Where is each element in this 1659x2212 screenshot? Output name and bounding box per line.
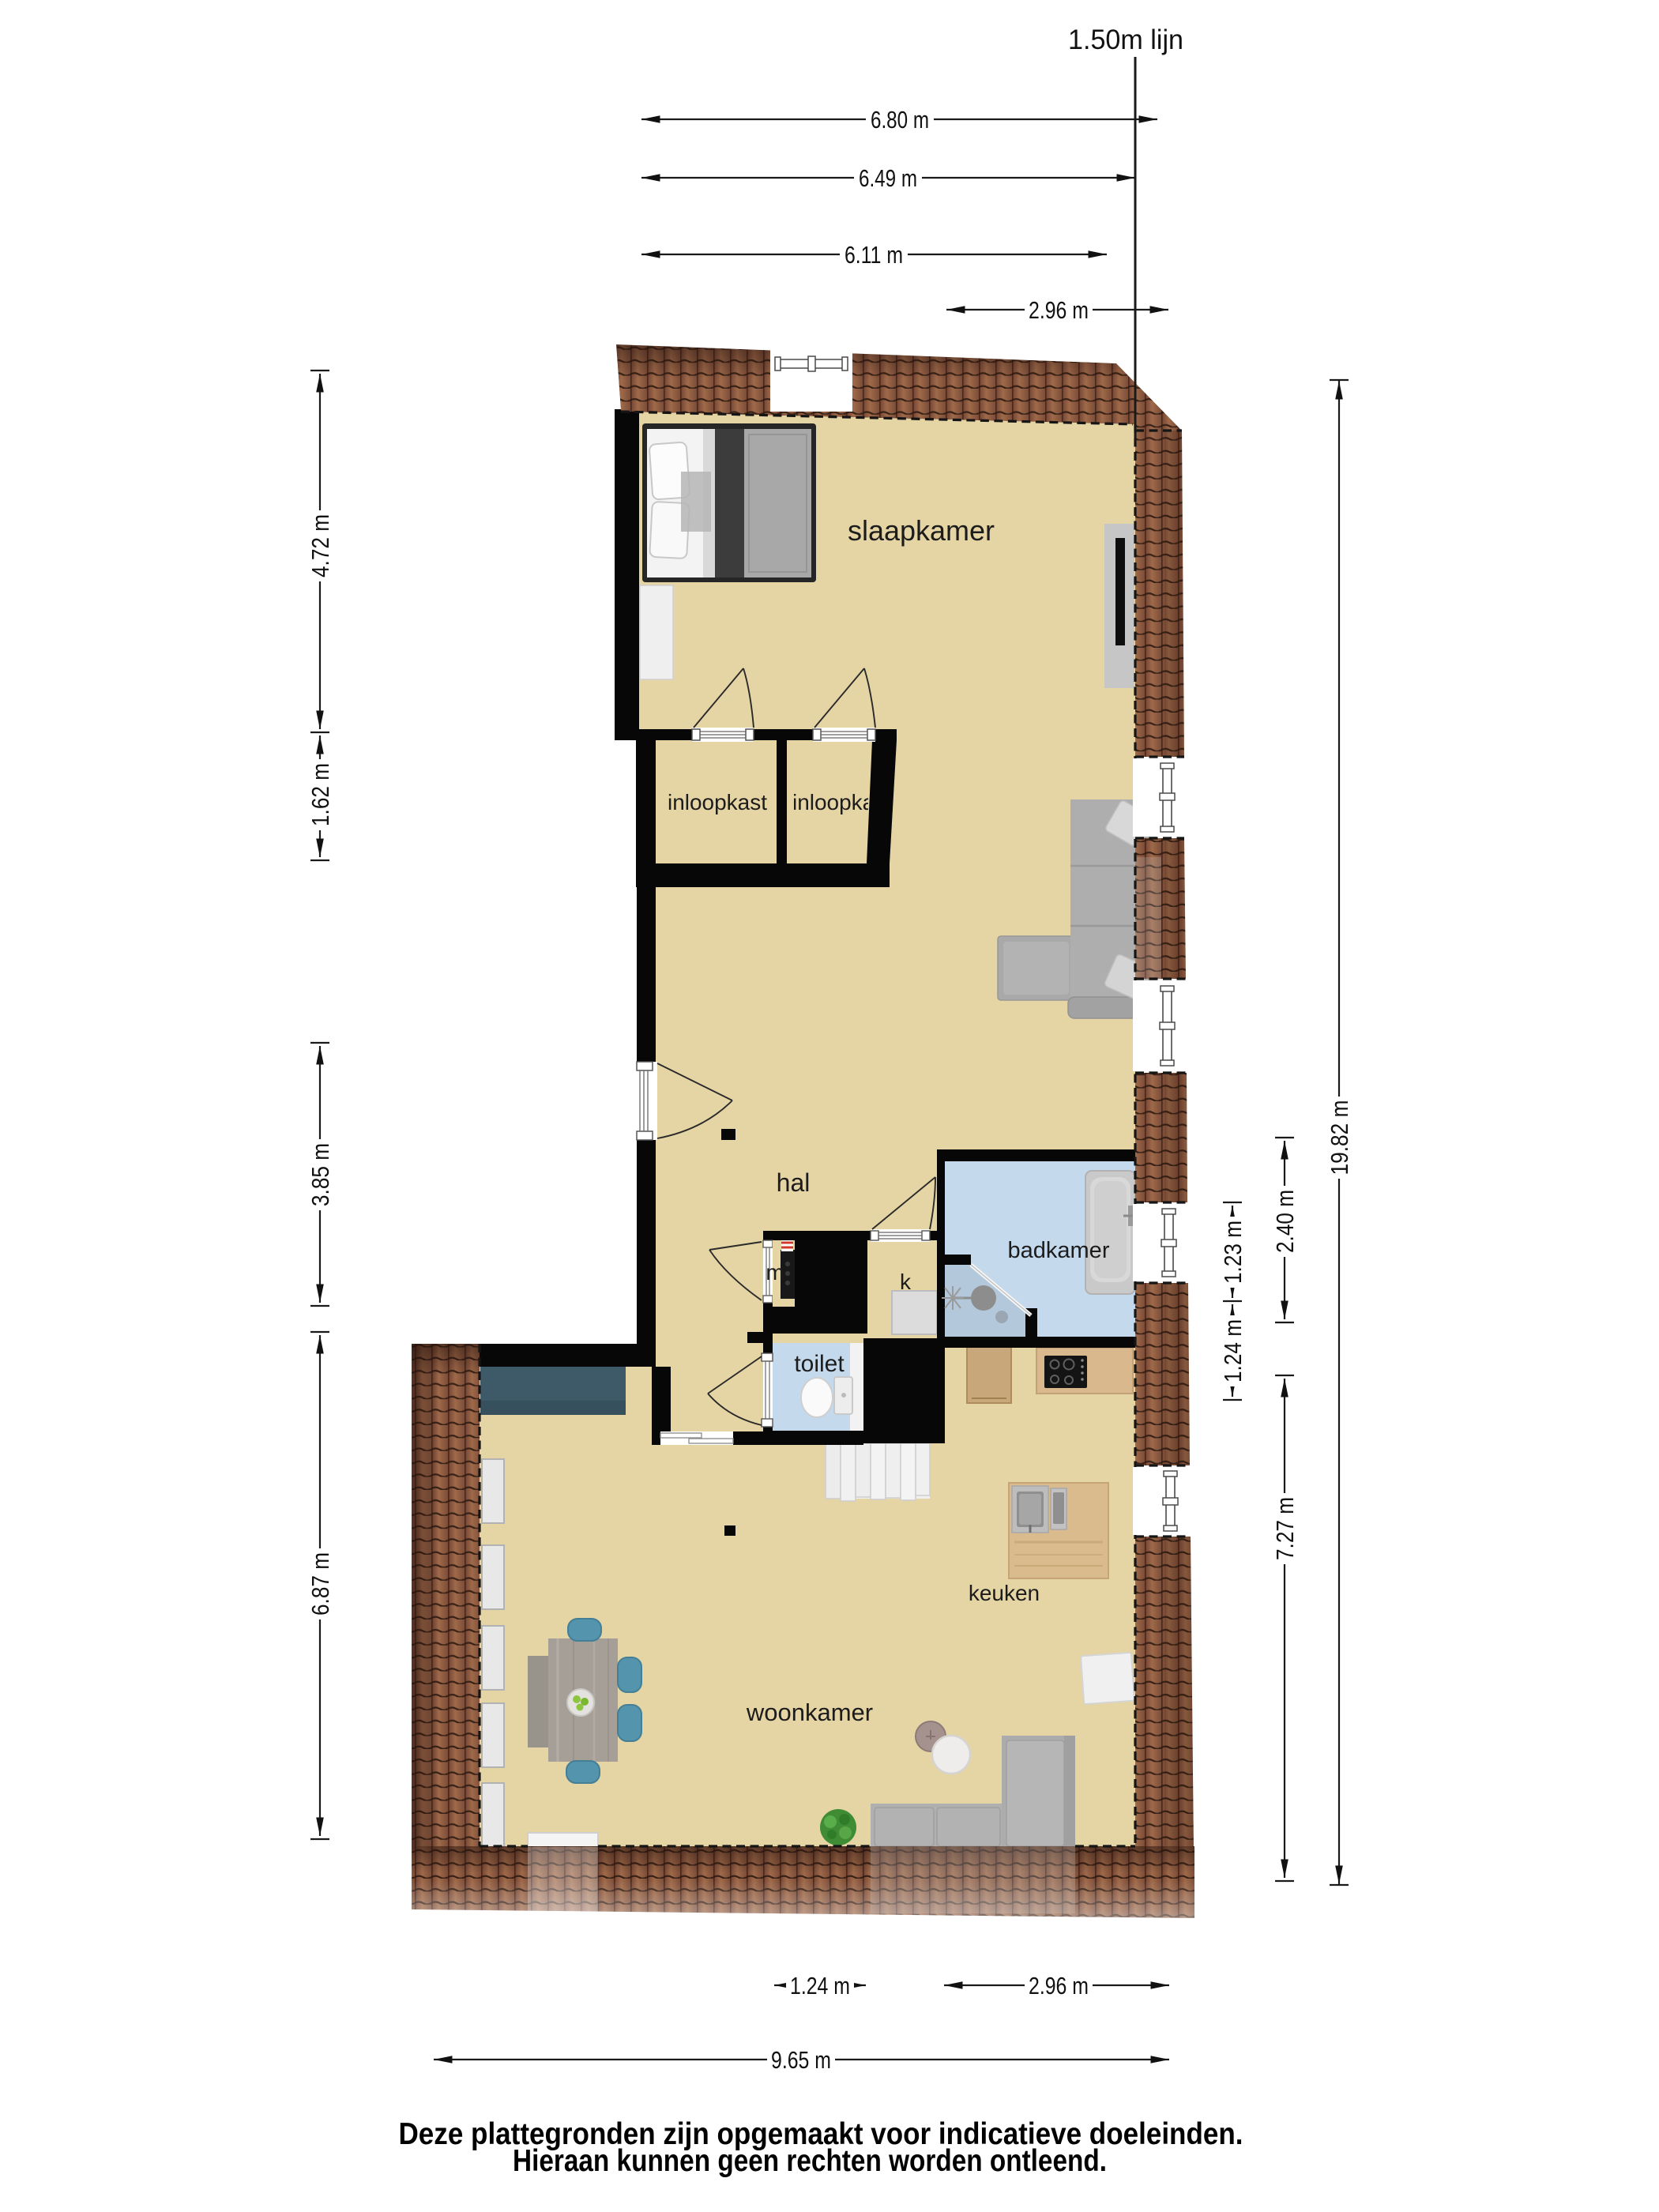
svg-text:4.72 m: 4.72 m <box>307 514 334 577</box>
svg-text:6.11 m: 6.11 m <box>845 241 903 269</box>
svg-text:19.82 m: 19.82 m <box>1326 1100 1353 1176</box>
svg-text:toilet: toilet <box>794 1351 845 1377</box>
svg-text:7.27 m: 7.27 m <box>1271 1497 1299 1560</box>
svg-text:1.62 m: 1.62 m <box>307 763 334 826</box>
svg-text:6.87 m: 6.87 m <box>307 1552 334 1616</box>
svg-text:6.80 m: 6.80 m <box>871 106 929 134</box>
svg-text:k: k <box>900 1270 912 1294</box>
svg-text:woonkamer: woonkamer <box>746 1698 873 1726</box>
svg-text:1.24 m: 1.24 m <box>1219 1319 1247 1382</box>
svg-text:Hieraan kunnen geen rechten wo: Hieraan kunnen geen rechten worden ontle… <box>513 2144 1107 2178</box>
svg-text:9.65 m: 9.65 m <box>771 2046 831 2074</box>
svg-text:slaapkamer: slaapkamer <box>848 514 995 547</box>
svg-text:6.49 m: 6.49 m <box>859 164 917 192</box>
svg-text:2.96 m: 2.96 m <box>1029 1972 1089 1999</box>
svg-text:1.50m lijn: 1.50m lijn <box>1068 24 1183 55</box>
svg-text:2.40 m: 2.40 m <box>1271 1190 1299 1253</box>
svg-text:inloopkast: inloopkast <box>668 790 767 814</box>
svg-text:1.23 m: 1.23 m <box>1219 1221 1247 1284</box>
svg-text:badkamer: badkamer <box>1008 1238 1110 1263</box>
svg-text:keuken: keuken <box>969 1581 1040 1605</box>
svg-text:1.24 m: 1.24 m <box>790 1972 850 1999</box>
svg-text:hal: hal <box>777 1168 811 1197</box>
svg-text:3.85 m: 3.85 m <box>307 1143 334 1206</box>
svg-text:2.96 m: 2.96 m <box>1029 296 1089 324</box>
svg-text:m: m <box>766 1260 784 1285</box>
